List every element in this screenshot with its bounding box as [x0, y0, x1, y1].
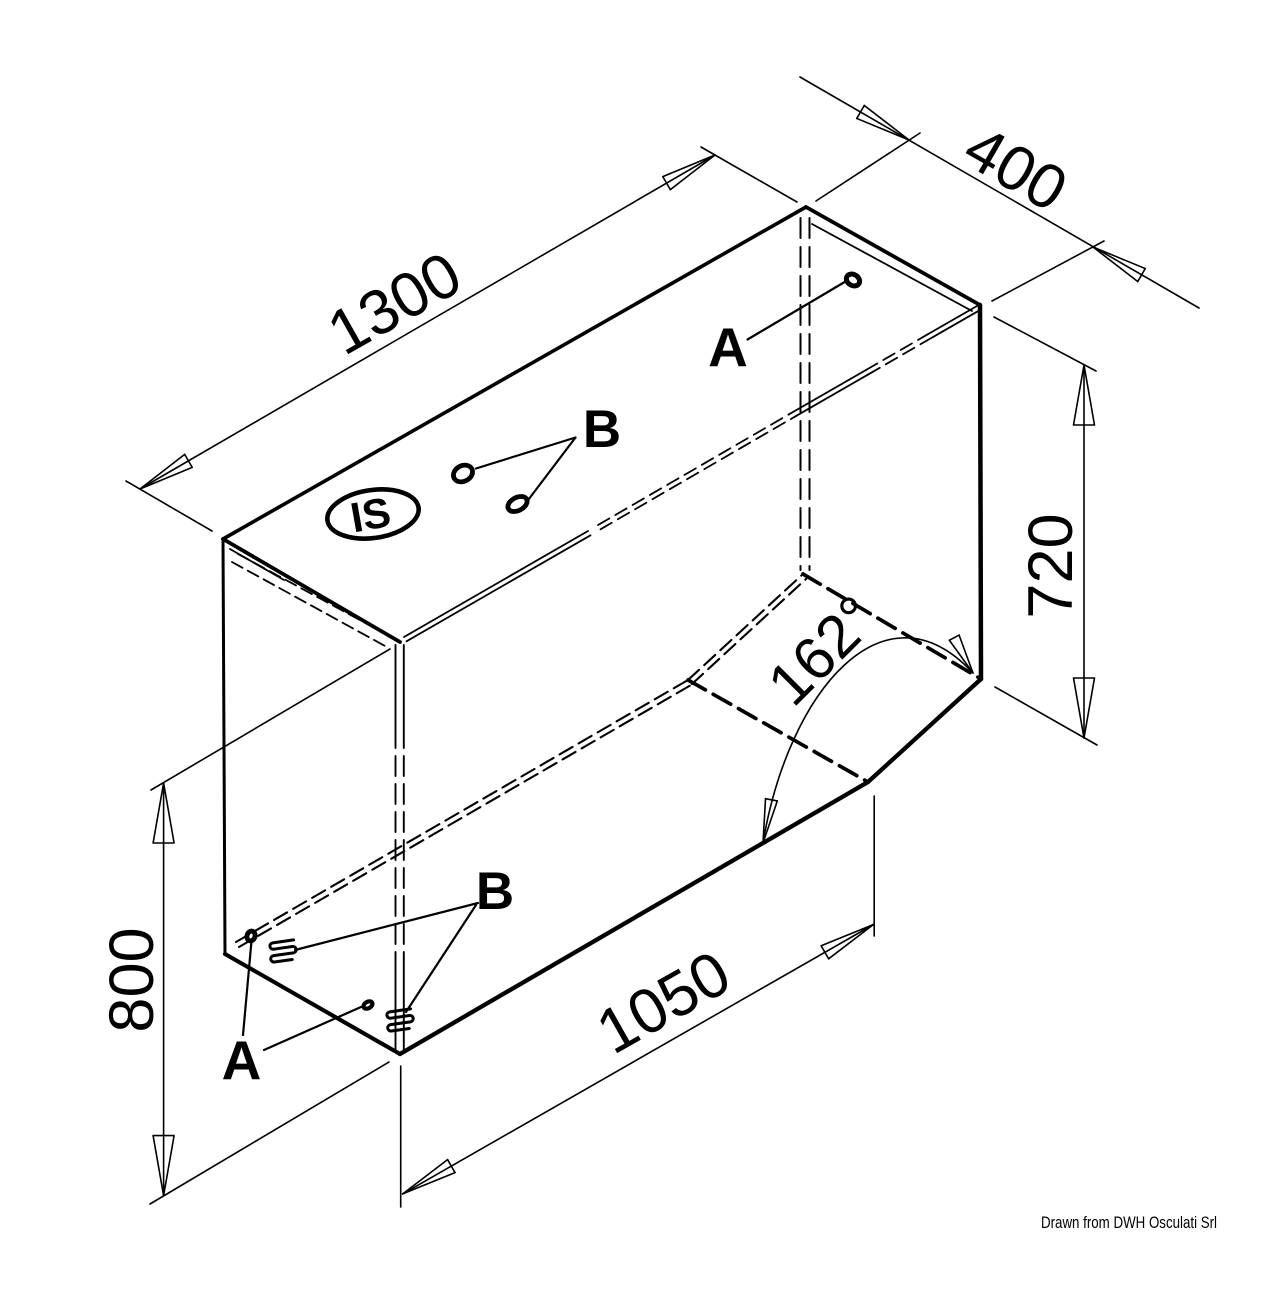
svg-text:B: B — [476, 862, 514, 921]
svg-text:B: B — [583, 400, 621, 459]
svg-text:A: A — [222, 1029, 262, 1091]
svg-text:IS: IS — [347, 488, 394, 541]
svg-text:A: A — [708, 316, 748, 378]
svg-text:Drawn from DWH Osculati Srl: Drawn from DWH Osculati Srl — [1041, 1213, 1217, 1232]
svg-text:800: 800 — [97, 927, 167, 1032]
svg-text:720: 720 — [1016, 513, 1086, 618]
